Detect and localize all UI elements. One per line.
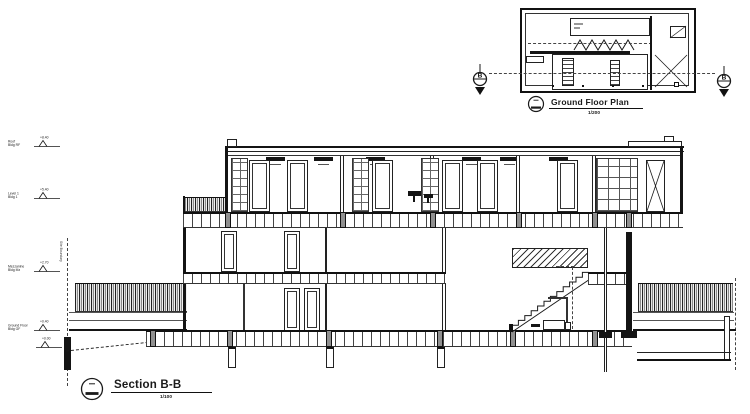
balcony-railing bbox=[183, 197, 225, 212]
door bbox=[249, 160, 270, 212]
door bbox=[221, 231, 237, 272]
stair-landing-band bbox=[588, 272, 631, 285]
plan-pool-outline bbox=[570, 18, 650, 36]
level-label-ground-floor: Ground Floor Bldg GF bbox=[8, 324, 28, 331]
section-scale: 1/100 bbox=[160, 394, 172, 399]
slab-pier bbox=[437, 330, 443, 347]
level-sublabel: Bldg RF bbox=[8, 143, 20, 146]
level-marker-icon bbox=[34, 190, 60, 200]
drawing-title-symbol-icon bbox=[80, 377, 104, 401]
balcony-post bbox=[183, 196, 185, 212]
level-marker-icon bbox=[34, 138, 60, 148]
basin-stem bbox=[427, 198, 429, 203]
level-sublabel: Bldg Mz bbox=[8, 268, 24, 271]
plan-stair-flight bbox=[562, 58, 574, 86]
right-ground-line bbox=[633, 329, 736, 331]
partition bbox=[243, 284, 245, 331]
right-terrace-line bbox=[633, 312, 734, 313]
left-terrace-line bbox=[69, 312, 187, 313]
floor-band-pier bbox=[592, 212, 598, 228]
ceiling-unit bbox=[314, 157, 333, 161]
door bbox=[372, 160, 393, 212]
section-title-underline bbox=[111, 392, 212, 393]
site-boundary-label: Site Boundary bbox=[59, 241, 62, 262]
plan-small-room-diagonal bbox=[670, 26, 686, 38]
left-terrace-line bbox=[69, 320, 187, 321]
slab-pier bbox=[326, 330, 332, 347]
stair-column bbox=[626, 232, 632, 332]
right-terrace-line bbox=[633, 320, 734, 321]
plan-zigzag-louvres bbox=[574, 39, 634, 51]
cross-brace-icon bbox=[646, 160, 665, 212]
door bbox=[287, 160, 308, 212]
level-marker-icon bbox=[34, 322, 60, 332]
section-marker-right-letter: B bbox=[722, 75, 727, 82]
level-marker-icon bbox=[36, 339, 62, 349]
drawing-title-symbol-icon bbox=[527, 95, 545, 113]
slab-pier bbox=[227, 330, 233, 347]
level-label-mezzanine: Mezzanine Bldg Mz bbox=[8, 265, 24, 272]
level-sublabel: Bldg 1 bbox=[8, 195, 19, 198]
ceiling-unit-tick bbox=[504, 164, 515, 165]
equipment-bar bbox=[531, 324, 540, 327]
ceiling-unit-tick bbox=[270, 164, 281, 165]
plan-fixture bbox=[526, 56, 544, 63]
stair-header-hatched-beam bbox=[512, 248, 588, 268]
level-label-level1: Level 1 Bldg 1 bbox=[8, 192, 19, 199]
basin-stem bbox=[413, 196, 415, 202]
section-cut-line bbox=[489, 73, 715, 74]
foundation-stub bbox=[228, 347, 236, 368]
plan-tiny-text-bar bbox=[574, 23, 583, 25]
ceiling-line bbox=[228, 155, 680, 156]
floor-band-pier bbox=[626, 212, 632, 228]
door bbox=[284, 231, 300, 272]
roof-parapet-cap bbox=[664, 136, 674, 142]
level-label-roof: Roof Bldg RF bbox=[8, 140, 20, 147]
plan-column-dot bbox=[582, 85, 584, 87]
floor-band-pier bbox=[340, 212, 346, 228]
level-marker-icon bbox=[34, 263, 60, 273]
door bbox=[477, 160, 498, 212]
foundation-stub bbox=[326, 347, 334, 368]
plan-title-underline bbox=[549, 108, 643, 109]
plan-column-dot bbox=[552, 85, 554, 87]
left-fence-hatch bbox=[75, 283, 187, 312]
ceiling-unit-tick bbox=[318, 164, 329, 165]
foundation-stub bbox=[437, 347, 445, 368]
section-marker-right: B bbox=[714, 66, 734, 100]
slender-column bbox=[604, 228, 607, 372]
column-footing bbox=[599, 332, 612, 338]
plan-column-dot bbox=[642, 85, 644, 87]
plan-tiny-text-bar bbox=[574, 27, 580, 29]
glazed-window-grid bbox=[596, 158, 638, 212]
roof-slab-soffit bbox=[225, 151, 684, 152]
tiled-wall-panel bbox=[352, 158, 369, 212]
door bbox=[284, 288, 300, 331]
architectural-drawing-sheet: B B Ground Floor Plan 1/200 Roof Bldg RF… bbox=[0, 0, 750, 414]
plan-wall bbox=[650, 16, 652, 90]
ceiling-unit-tick bbox=[466, 164, 477, 165]
section-title: Section B-B bbox=[114, 379, 181, 391]
plan-centerline bbox=[528, 43, 652, 44]
tiled-wall-panel bbox=[421, 158, 439, 212]
roof-slab-top bbox=[225, 146, 684, 148]
column-footing bbox=[621, 331, 637, 338]
floor-band-pier bbox=[430, 212, 436, 228]
inset-ground-floor-plan bbox=[520, 8, 696, 93]
interior-wall bbox=[516, 156, 520, 212]
plan-column-dot bbox=[612, 85, 614, 87]
mezzanine-floor-band bbox=[183, 272, 446, 284]
level-sublabel: Bldg GF bbox=[8, 327, 28, 330]
floor-band-pier bbox=[516, 212, 522, 228]
equipment-box bbox=[543, 320, 565, 330]
section-marker-left-letter: B bbox=[478, 73, 483, 80]
right-fence-hatch bbox=[638, 283, 733, 312]
roof-stack bbox=[227, 139, 237, 147]
door bbox=[304, 288, 320, 331]
plan-ramp-diagonals bbox=[654, 54, 688, 88]
right-lower-slab bbox=[637, 352, 731, 361]
door bbox=[442, 160, 463, 212]
equipment-box bbox=[565, 322, 571, 330]
plan-title: Ground Floor Plan bbox=[551, 97, 629, 107]
plan-corner-box bbox=[674, 82, 679, 87]
plan-scale: 1/200 bbox=[588, 110, 600, 115]
tiled-wall-panel bbox=[231, 158, 248, 212]
slab-pier bbox=[150, 330, 156, 347]
section-marker-left: B bbox=[470, 64, 490, 98]
site-boundary-right bbox=[735, 278, 736, 370]
interior-wall bbox=[340, 156, 344, 212]
floor-band-pier bbox=[225, 212, 231, 228]
door bbox=[557, 160, 578, 212]
pipe bbox=[548, 297, 568, 299]
